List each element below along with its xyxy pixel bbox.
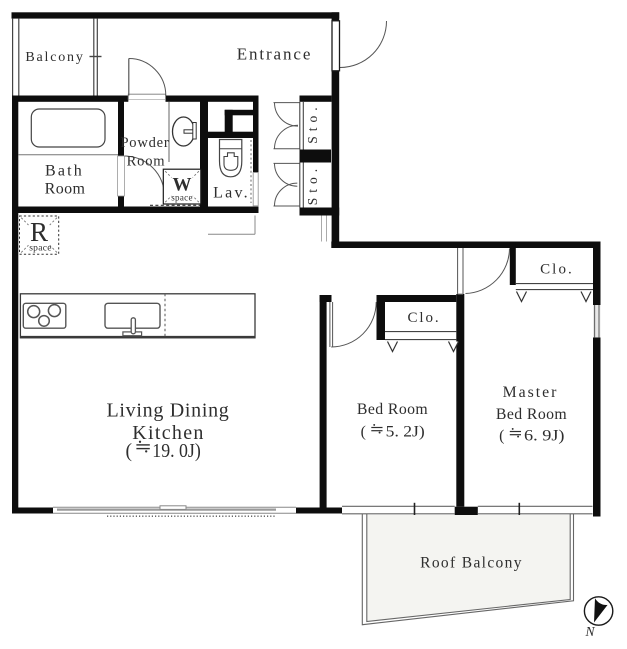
svg-text:Sto.: Sto. [305,164,320,205]
svg-text:Master: Master [503,384,559,401]
svg-text:Sto.: Sto. [305,102,320,143]
svg-text:space: space [29,244,52,254]
svg-text:19. 0J): 19. 0J) [152,441,201,462]
svg-text:space: space [171,193,193,203]
svg-text:Lav.: Lav. [213,185,250,202]
svg-text:5. 2J): 5. 2J) [386,424,425,441]
svg-text:(: ( [499,428,504,445]
svg-text:Entrance: Entrance [237,45,313,64]
svg-text:(: ( [361,424,366,441]
svg-text:Clo.: Clo. [407,310,440,326]
svg-text:R: R [30,217,48,247]
svg-text:(: ( [125,441,132,462]
svg-text:Balcony: Balcony [25,50,84,65]
svg-text:Living Dining: Living Dining [107,399,230,421]
svg-text:Bed Room: Bed Room [357,401,429,418]
svg-text:Bath: Bath [45,163,84,180]
svg-text:Roof Balcony: Roof Balcony [420,555,523,572]
svg-text:6. 9J): 6. 9J) [524,428,565,445]
svg-text:Room: Room [127,154,166,170]
svg-text:Bed Room: Bed Room [496,406,568,423]
svg-text:Clo.: Clo. [540,262,574,278]
svg-text:Room: Room [45,180,86,197]
svg-text:N: N [584,624,595,639]
svg-text:Powder: Powder [120,135,169,151]
